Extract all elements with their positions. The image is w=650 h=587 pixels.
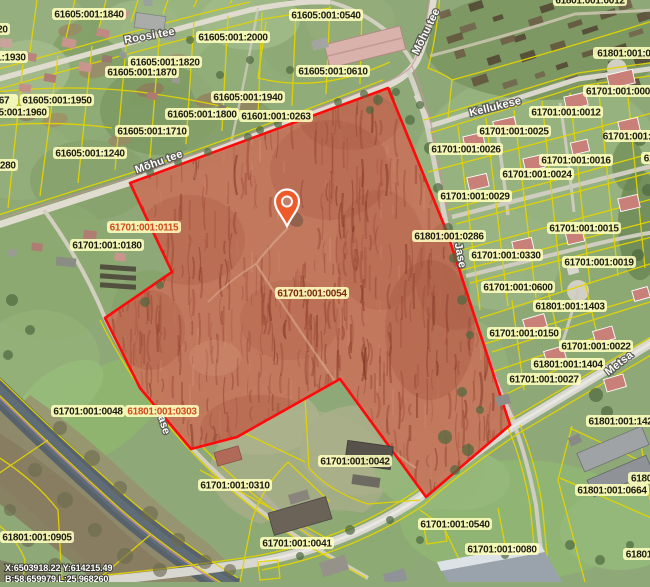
svg-text:61801:001:0: 61801:001:0 [597,49,650,60]
svg-text:61801:001:0286: 61801:001:0286 [414,232,484,243]
svg-text:61701:001:0080: 61701:001:0080 [467,545,537,556]
svg-text:61605:001:1240: 61605:001:1240 [55,149,125,160]
svg-text:61701:001:0024: 61701:001:0024 [502,170,572,181]
svg-text:61601:001:0263: 61601:001:0263 [241,112,311,123]
svg-text:61701:001:0115: 61701:001:0115 [110,223,179,234]
svg-text:61801:001:1404: 61801:001:1404 [533,360,603,371]
svg-text:61701:001:0048: 61701:001:0048 [53,407,123,418]
svg-text:61: 61 [644,154,650,165]
svg-text:61605:001:0610: 61605:001:0610 [298,67,368,78]
svg-text:B:58.659979 L:25.968260: B:58.659979 L:25.968260 [5,574,108,582]
svg-text:61701:001:0180: 61701:001:0180 [72,241,142,252]
svg-text:61801:001:0012: 61801:001:0012 [555,0,625,7]
svg-text:61605:001:1950: 61605:001:1950 [22,96,92,107]
svg-text:X:6503918.22 Y:614215.49: X:6503918.22 Y:614215.49 [5,563,112,573]
svg-text:61801:001:0303: 61801:001:0303 [127,407,197,418]
svg-text:61701:001:0054: 61701:001:0054 [277,289,347,300]
svg-text:61801:001:142: 61801:001:142 [589,417,650,428]
svg-text:61701:001:0029: 61701:001:0029 [440,192,510,203]
svg-text:61605:001:1800: 61605:001:1800 [167,110,237,121]
svg-text:61605:001:2000: 61605:001:2000 [198,33,268,44]
svg-text:61701:001:0540: 61701:001:0540 [420,520,490,531]
svg-text:61605:001:1930: 61605:001:1930 [0,53,26,64]
svg-text:61801:001:0905: 61801:001:0905 [2,533,72,544]
svg-text:61605:001:0540: 61605:001:0540 [291,11,361,22]
svg-text:61701:001:000: 61701:001:000 [586,87,650,98]
svg-text:61605:001:1870: 61605:001:1870 [107,68,177,79]
svg-text:67: 67 [0,96,10,107]
svg-text:61801:0: 61801:0 [626,550,650,561]
svg-text:61701:001:0026: 61701:001:0026 [431,145,501,156]
svg-text:61701:001:0600: 61701:001:0600 [483,283,553,294]
svg-text:61701:001:0041: 61701:001:0041 [262,539,332,550]
svg-text:61801:001:0664: 61801:001:0664 [577,486,647,497]
svg-text:61605:001:1280: 61605:001:1280 [0,161,16,172]
svg-text:61701:001:0: 61701:001:0 [603,132,650,143]
svg-text:61801:001:1403: 61801:001:1403 [535,302,605,313]
svg-text:61701:001:0310: 61701:001:0310 [200,481,270,492]
svg-text:61605:001:1710: 61605:001:1710 [117,127,187,138]
svg-text:6180: 6180 [631,474,650,485]
svg-text:61701:001:0022: 61701:001:0022 [561,342,631,353]
svg-text:61605:001:1940: 61605:001:1940 [213,93,283,104]
svg-text:61605:001:1960: 61605:001:1960 [0,108,47,119]
svg-text:61701:001:0016: 61701:001:0016 [541,156,611,167]
svg-text:61701:001:0330: 61701:001:0330 [471,251,541,262]
svg-text:61701:001:0012: 61701:001:0012 [531,108,601,119]
svg-text:61605:001:1840: 61605:001:1840 [54,10,124,21]
svg-text:61701:001:0027: 61701:001:0027 [509,375,579,386]
svg-text:61605:001:1920: 61605:001:1920 [0,25,8,36]
svg-text:61701:001:0042: 61701:001:0042 [320,457,390,468]
svg-text:61701:001:0025: 61701:001:0025 [479,127,549,138]
svg-text:61701:001:0019: 61701:001:0019 [564,258,634,269]
svg-text:61701:001:0150: 61701:001:0150 [489,329,559,340]
svg-text:61701:001:0015: 61701:001:0015 [549,224,619,235]
